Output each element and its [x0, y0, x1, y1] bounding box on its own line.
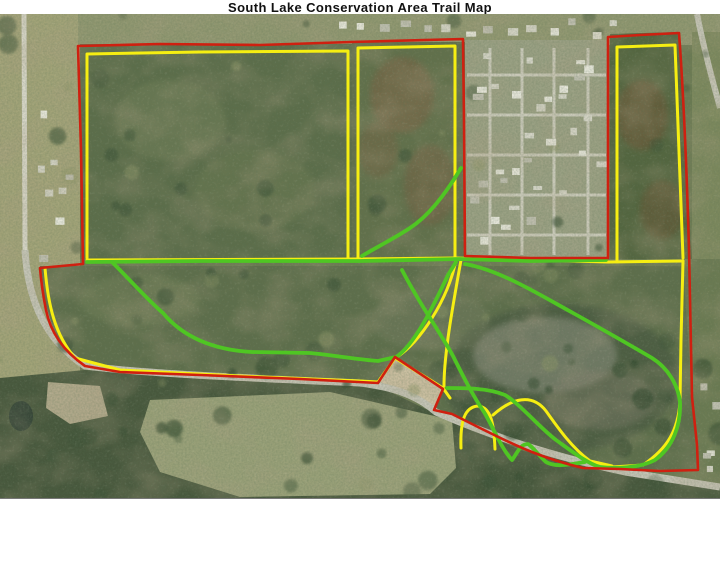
- page-title: South Lake Conservation Area Trail Map: [0, 0, 720, 15]
- aerial-background: [0, 14, 720, 498]
- trail-map: [0, 14, 720, 499]
- map-page: South Lake Conservation Area Trail Map: [0, 0, 720, 576]
- map-footer: Legend Sanctuary Boundary Hiking Trail F…: [0, 499, 720, 576]
- aerial-map-canvas: [0, 14, 720, 498]
